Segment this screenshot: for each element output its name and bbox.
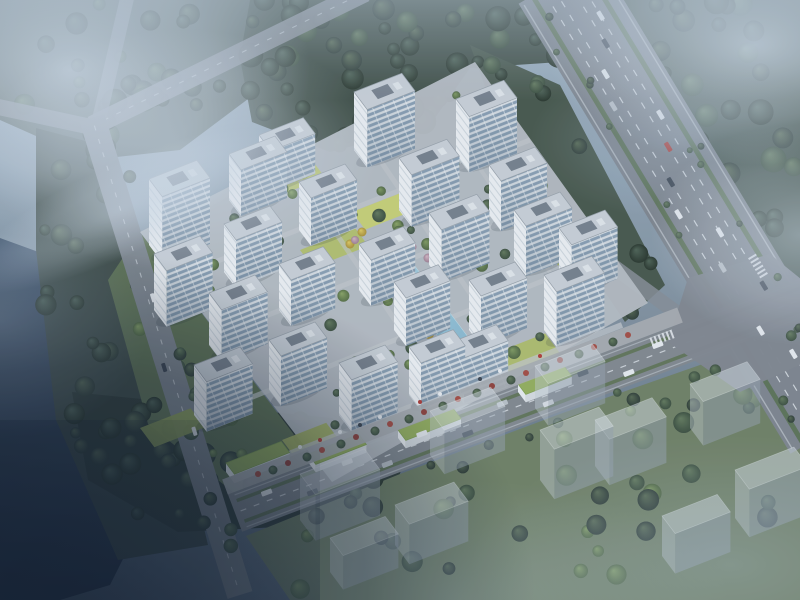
render-canvas	[0, 0, 800, 600]
aerial-residential-rendering	[0, 0, 800, 600]
cool-tint	[0, 0, 800, 600]
